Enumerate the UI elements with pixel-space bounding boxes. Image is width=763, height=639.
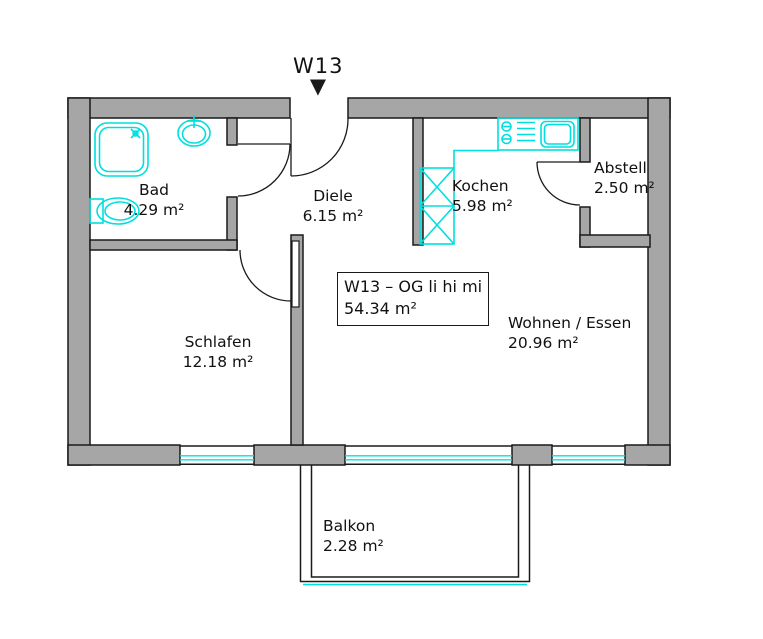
room-name: Wohnen / Essen — [508, 313, 648, 333]
top-wall-left-segment — [68, 98, 290, 118]
bathroom-wall-upper-stub — [227, 118, 237, 145]
room-name: Bad — [112, 180, 196, 200]
room-area: 20.96 m² — [508, 333, 648, 353]
room-name: Balkon — [323, 516, 403, 536]
door-swing-arc — [238, 144, 290, 196]
top-wall-right-segment — [348, 98, 670, 118]
bedroom-window — [180, 446, 254, 464]
counter-edge-line — [454, 151, 498, 169]
kitchen-unit-icon — [498, 118, 578, 150]
room-area: 2.28 m² — [323, 536, 403, 556]
room-label-wohnen-essen: Wohnen / Essen 20.96 m² — [508, 313, 648, 354]
room-label-abstell: Abstell 2.50 m² — [594, 158, 664, 199]
room-label-balkon: Balkon 2.28 m² — [323, 516, 403, 557]
door-swing-arc — [537, 162, 580, 205]
room-name: Abstell — [594, 158, 664, 178]
bathroom-door — [238, 144, 290, 196]
storage-door — [537, 162, 580, 205]
apartment-id: W13 – OG li hi mi — [344, 276, 482, 298]
kitchen-sink-inner — [545, 125, 571, 145]
storage-bottom-wall — [580, 235, 650, 247]
living-room-window — [552, 446, 625, 464]
left-wall — [68, 98, 90, 465]
kitchen-divider-wall — [413, 118, 423, 245]
bottom-wall-segment-2 — [254, 445, 345, 465]
floor-plan-canvas: W13 ▼ W13 – OG li hi mi 54.34 m² Bad 4.2… — [0, 0, 763, 639]
room-name: Diele — [298, 186, 368, 206]
room-name: Schlafen — [181, 332, 255, 352]
bottom-wall-segment-1 — [68, 445, 180, 465]
room-area: 6.15 m² — [298, 206, 368, 226]
room-label-bad: Bad 4.29 m² — [112, 180, 196, 221]
room-name: Kochen — [452, 176, 532, 196]
bathroom-bedroom-wall — [90, 240, 237, 250]
entrance-arrow-icon: ▼ — [303, 76, 333, 97]
room-area: 12.18 m² — [181, 352, 255, 372]
apartment-info-box: W13 – OG li hi mi 54.34 m² — [337, 272, 489, 326]
room-area: 4.29 m² — [112, 200, 196, 220]
apartment-total-area: 54.34 m² — [344, 298, 482, 320]
tall-cabinet-icon — [420, 168, 454, 244]
room-area: 2.50 m² — [594, 178, 664, 198]
right-wall — [648, 98, 670, 465]
bedroom-door — [240, 241, 299, 307]
door-swing-arc — [240, 250, 291, 301]
door-swing-arc — [291, 118, 348, 176]
shower-outer — [95, 123, 148, 176]
windows — [180, 446, 625, 464]
room-label-schlafen: Schlafen 12.18 m² — [181, 332, 255, 373]
shower-icon — [95, 123, 148, 176]
entrance-door — [291, 118, 348, 176]
room-label-diele: Diele 6.15 m² — [298, 186, 368, 227]
balcony-door-window — [345, 446, 512, 464]
storage-wall-upper-stub — [580, 118, 590, 162]
room-label-kochen: Kochen 5.98 m² — [452, 176, 532, 217]
bottom-wall-segment-3 — [512, 445, 552, 465]
washbasin-icon — [178, 115, 210, 146]
bottom-wall-segment-4 — [625, 445, 670, 465]
door-leaf — [292, 241, 299, 307]
room-area: 5.98 m² — [452, 196, 532, 216]
